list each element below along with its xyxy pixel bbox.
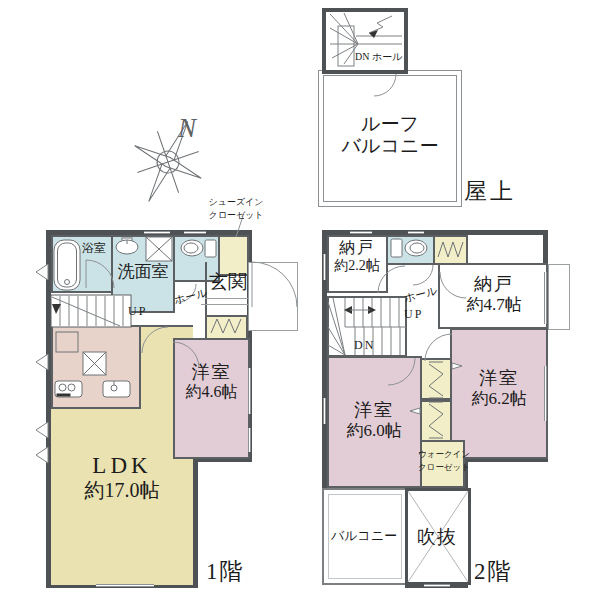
storage-a-name: 納戸 [326,239,388,258]
wall-segment [193,457,198,588]
shoe-cabinet [205,315,248,340]
storage-b-name: 納戸 [442,274,546,295]
window [184,231,206,234]
room-e-size: 約6.2帖 [452,389,546,409]
svg-text:N: N [177,113,198,143]
room-w-name: 洋室 [326,400,422,421]
washroom-label: 洗面室 [111,262,175,282]
balcony-label: バルコニー [331,528,397,543]
west-room-size: 約4.6帖 [175,383,248,402]
west-room-label: 洋室 約4.6帖 [175,362,248,402]
floor-plan: DN ホール ルーフ バルコニー 屋上 浴室 洗面室 玄関 ホール UP シュー… [0,0,600,600]
window [248,368,251,414]
wic-label-line1: ウォークイン [418,448,466,461]
bay-window-outline [548,264,570,330]
closet-a [420,358,452,400]
room-toilet-2f [386,235,435,265]
storage-b-size: 約4.7帖 [442,295,546,315]
sic-label: シューズイン クローゼット [202,196,270,221]
sic-label-line2: クローゼット [202,209,270,222]
window [408,231,424,234]
window [248,428,251,452]
dn-label-2f: DN [354,338,375,352]
roof-section-label: 屋上 [464,178,516,205]
ldk-name: LDK [56,452,188,479]
window [424,584,450,587]
genkan-label: 玄関 [209,271,247,293]
storage-a-size: 約2.2帖 [326,258,388,275]
bath-label: 浴室 [82,241,106,255]
room-e-label: 洋室 約6.2帖 [452,368,546,409]
void-label: 吹抜 [417,526,457,548]
kitchen-area [51,325,141,409]
genkan-step-line [201,304,249,305]
closet-b [420,400,452,442]
window [96,584,154,587]
up-label-1f: UP [128,304,147,318]
roof-balcony-label-line2: バルコニー [318,135,462,157]
window [144,231,170,234]
f2-section-label: 2階 [474,558,513,585]
roof-balcony-label-line1: ルーフ [318,113,462,135]
room-w-size: 約6.0帖 [326,421,422,441]
storage-b-label: 納戸 約4.7帖 [442,274,546,315]
f1-section-label: 1階 [206,558,245,585]
ldk-label: LDK 約17.0帖 [56,452,188,503]
genkan-step-line [205,298,249,299]
roof-balcony-label: ルーフ バルコニー [318,113,462,158]
west-room-name: 洋室 [175,362,248,383]
room-e-name: 洋室 [452,368,546,389]
sic-label-line1: シューズイン [202,196,270,209]
storage-a-label: 納戸 約2.2帖 [326,239,388,274]
hall-label-2f: ホール [403,284,439,305]
roof-stair-hall [322,8,408,74]
roof-dn-hall-label: DN ホール [355,51,402,63]
shoes-in-closet [218,235,249,276]
closet-2f-top [433,235,468,265]
window [350,231,372,234]
room-w-label: 洋室 約6.0帖 [326,400,422,441]
entrance-porch-outline [248,262,298,331]
wic-label: ウォークイン クローゼット [418,448,466,474]
wic-label-line2: クローゼット [418,461,466,474]
ldk-size: 約17.0帖 [56,479,188,503]
up-label-2f: UP [404,307,423,321]
